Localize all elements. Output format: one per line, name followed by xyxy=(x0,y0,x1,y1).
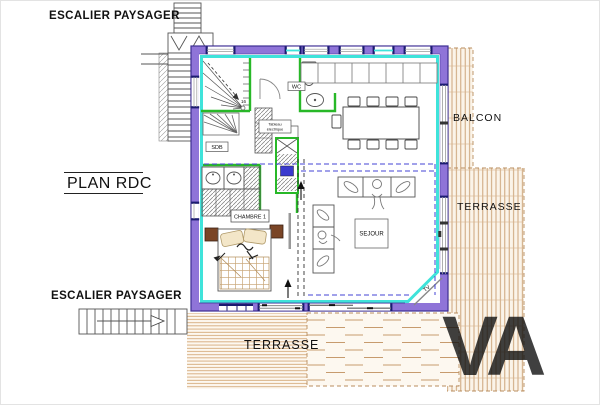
plan-title-block: PLAN RDC xyxy=(64,173,152,194)
escalier-top-label: ESCALIER PAYSAGER xyxy=(49,10,180,22)
exterior-stair-bottom xyxy=(79,309,187,334)
floor-plan-canvas: VA xyxy=(1,1,600,405)
terrasse-right-label: TERRASSE xyxy=(457,201,522,213)
bathroom-vanity xyxy=(202,167,244,189)
tech-label-line2: électrique xyxy=(267,128,283,132)
sejour-label: SEJOUR xyxy=(359,232,384,238)
balcon-label: BALCON xyxy=(453,112,502,124)
kitchen-counter xyxy=(301,63,437,83)
terrasse-bottom-label: TERRASSE xyxy=(244,338,319,352)
step-count-label: 16 xyxy=(241,99,247,104)
sdb-label: SDB xyxy=(211,145,223,151)
plan-title: PLAN RDC xyxy=(67,175,152,192)
sliding-door xyxy=(289,213,292,249)
chambre1-label: CHAMBRE 1 xyxy=(234,215,266,221)
floor-plan-page: VA xyxy=(0,0,600,405)
wc-label: WC xyxy=(292,85,301,91)
escalier-bottom-label: ESCALIER PAYSAGER xyxy=(51,290,182,302)
deck-terrasse-bottom-right xyxy=(307,313,459,386)
nightstand-right xyxy=(270,225,283,238)
watermark: VA xyxy=(442,299,545,393)
deck-balcony xyxy=(447,48,473,168)
deck-terrasse-right xyxy=(447,168,524,306)
understair-closet xyxy=(203,113,239,135)
tech-label-line1: Tableau xyxy=(268,123,281,127)
nightstand-left xyxy=(205,228,218,241)
